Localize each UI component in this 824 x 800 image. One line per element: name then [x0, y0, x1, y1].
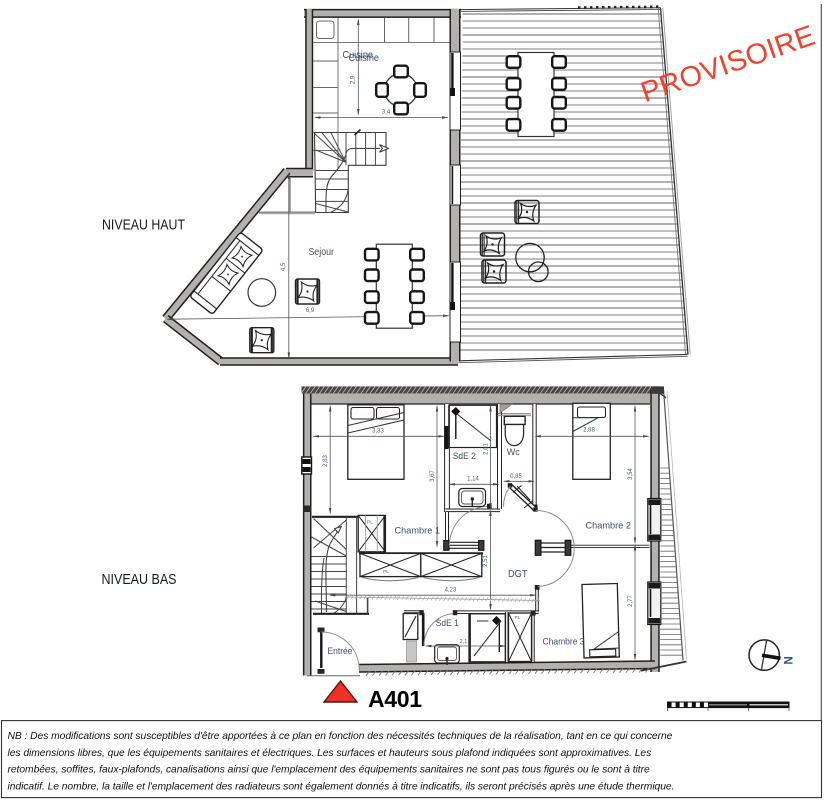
svg-text:Sejour: Sejour	[309, 247, 335, 258]
svg-text:PL: PL	[367, 520, 373, 526]
svg-text:2,51: 2,51	[483, 555, 489, 567]
svg-text:2,61: 2,61	[483, 443, 489, 455]
svg-text:3,33: 3,33	[372, 429, 384, 435]
svg-text:PL: PL	[515, 615, 521, 621]
svg-text:NIVEAU BAS: NIVEAU BAS	[102, 572, 177, 588]
svg-text:indicatif. Le nombre, la taill: indicatif. Le nombre, la taille et l'emp…	[8, 781, 675, 792]
svg-text:NB : Des modifications sont su: NB : Des modifications sont susceptibles…	[8, 731, 673, 742]
svg-text:PL: PL	[383, 569, 389, 575]
svg-text:Entrée: Entrée	[328, 646, 353, 657]
svg-text:Chambre 2: Chambre 2	[586, 521, 632, 532]
svg-text:Wc: Wc	[507, 447, 520, 458]
svg-text:SdE 1: SdE 1	[436, 617, 459, 628]
svg-text:4,23: 4,23	[445, 588, 457, 594]
svg-text:3,54: 3,54	[628, 468, 634, 480]
svg-text:Cuisine: Cuisine	[349, 53, 380, 64]
svg-text:NIVEAU HAUT: NIVEAU HAUT	[102, 218, 185, 234]
svg-text:A401: A401	[368, 686, 422, 712]
svg-text:3,4: 3,4	[382, 110, 391, 116]
svg-text:2,1: 2,1	[460, 639, 468, 645]
svg-text:2,9: 2,9	[351, 75, 357, 84]
svg-text:1,14: 1,14	[467, 477, 479, 483]
svg-text:retombées, soffites, faux-plaf: retombées, soffites, faux-plafonds, cana…	[8, 765, 650, 776]
svg-text:6,9: 6,9	[306, 308, 315, 314]
svg-text:Chambre 1: Chambre 1	[395, 526, 441, 537]
svg-text:4,5: 4,5	[281, 262, 287, 271]
svg-text:DGT: DGT	[508, 569, 528, 580]
svg-text:les dimensions libres, que les: les dimensions libres, que les équipemen…	[8, 748, 652, 759]
svg-text:2,83: 2,83	[323, 455, 329, 467]
svg-text:N: N	[781, 656, 793, 664]
svg-text:2,88: 2,88	[583, 428, 595, 434]
svg-text:SdE 2: SdE 2	[453, 450, 476, 461]
svg-text:3,67: 3,67	[430, 470, 436, 482]
svg-text:2,77: 2,77	[628, 595, 634, 607]
svg-text:Chambre 3: Chambre 3	[543, 637, 585, 647]
svg-text:0,85: 0,85	[510, 474, 522, 480]
